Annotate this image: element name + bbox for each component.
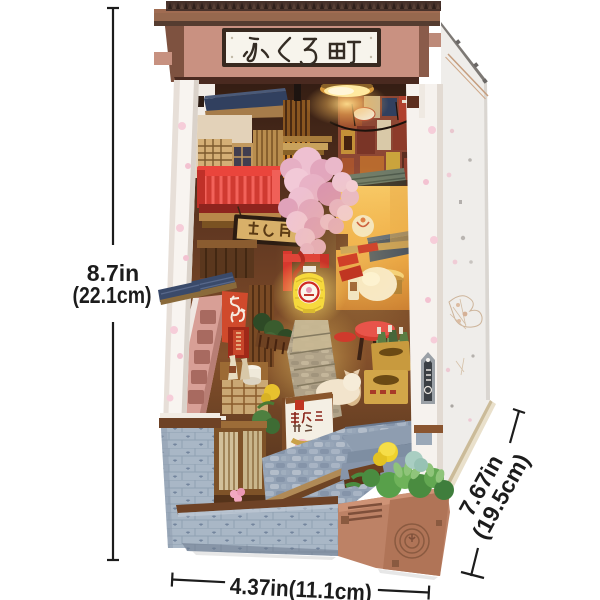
svg-text:(22.1cm): (22.1cm) (73, 282, 152, 308)
